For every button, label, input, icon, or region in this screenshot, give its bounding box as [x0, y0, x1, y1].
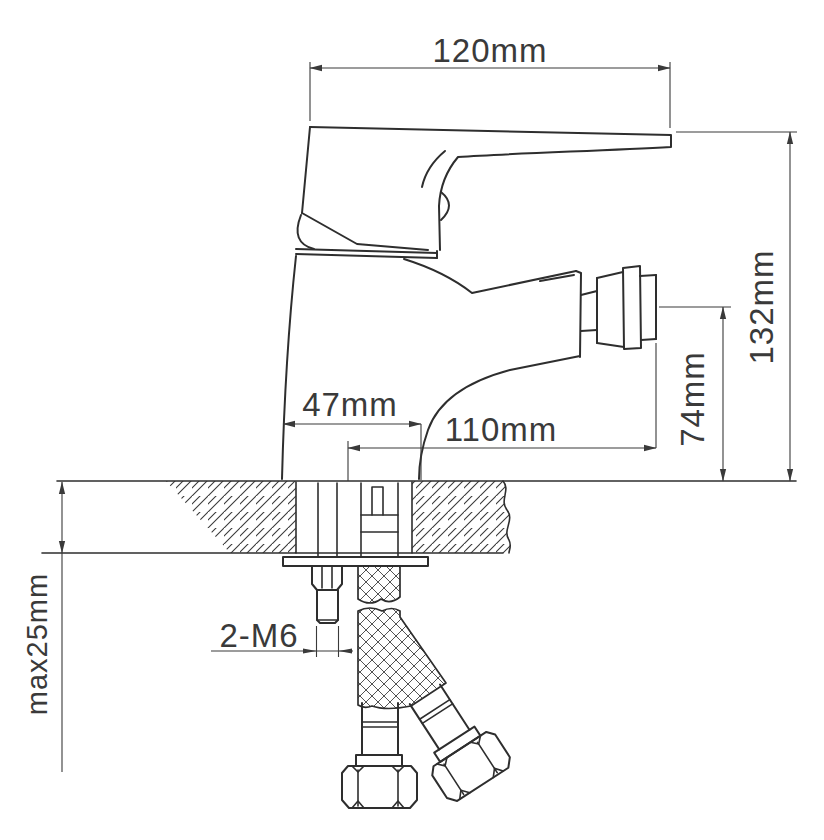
dim-label-132mm: 132mm	[743, 249, 780, 364]
braid-lower-segment	[358, 608, 446, 709]
cap-seam-lower	[296, 254, 437, 258]
braid-upper-segment	[358, 566, 400, 603]
mounting-nut	[312, 566, 342, 590]
countertop-hatch-right	[412, 481, 510, 553]
aerator-neck-top	[581, 291, 597, 295]
dim-max-deck-thickness: max25mm	[21, 482, 62, 772]
handle-bottom-edge	[302, 213, 428, 250]
hose-nut-chamfers	[352, 766, 404, 808]
mounting-flange	[283, 557, 428, 566]
dim-label-74mm: 74mm	[674, 351, 711, 447]
hose-nut	[342, 766, 417, 808]
dim-overall-width: 120mm	[310, 32, 670, 128]
aerator-body-top	[597, 272, 623, 278]
arrow-left	[303, 649, 317, 654]
faucet-spout	[404, 259, 581, 357]
countertop-hatch-left	[166, 481, 296, 553]
dim-label-120mm: 120mm	[432, 32, 547, 69]
supply-hose-vertical	[342, 703, 417, 808]
lever-bend-highlight	[422, 151, 445, 187]
faucet-handle-lever	[298, 127, 671, 250]
braided-hose-sections	[358, 566, 446, 709]
hose-nut	[428, 729, 514, 805]
aerator-cap-bottom	[641, 339, 656, 340]
dim-body-depth: 47mm	[283, 386, 421, 480]
lever-top-and-underside	[310, 127, 671, 250]
countertop-section	[42, 481, 796, 553]
dim-outlet-height: 74mm	[659, 307, 731, 481]
stud-outline	[317, 590, 338, 623]
aerator-cap-top	[640, 275, 656, 276]
mounting-shank	[318, 483, 398, 557]
hose-tube-left	[410, 704, 439, 749]
faucet-technical-drawing: 120mm 132mm 74mm 47mm 110mm max25mm	[0, 0, 824, 840]
connector-inner	[372, 487, 383, 515]
aerator-ring	[623, 266, 641, 349]
drawing-canvas: 120mm 132mm 74mm 47mm 110mm max25mm	[0, 0, 824, 840]
extension-lines	[317, 626, 339, 657]
body-front-edge	[282, 256, 296, 479]
handle-left-edge	[302, 127, 310, 213]
spout-end-face	[576, 271, 581, 357]
hose-collar	[356, 755, 402, 766]
dim-label-2-M6: 2-M6	[219, 617, 298, 654]
nut-outline	[312, 566, 342, 590]
arrow-right	[339, 649, 353, 654]
dim-label-110mm: 110mm	[445, 411, 558, 448]
hose-collar	[434, 727, 480, 762]
hose-tube-right	[440, 685, 469, 730]
aerator-body-bottom	[597, 343, 624, 347]
faucet-aerator	[581, 266, 656, 349]
mounting-stud	[317, 590, 338, 623]
aerator-neck-bottom	[581, 330, 597, 331]
handle-shoulder-arc	[298, 215, 314, 249]
dim-label-47mm: 47mm	[302, 386, 398, 423]
extension-lines	[310, 62, 670, 128]
spout-top-edge	[404, 259, 576, 293]
cartridge-cap-bulge	[441, 192, 449, 220]
dim-label-max25mm: max25mm	[21, 573, 53, 715]
